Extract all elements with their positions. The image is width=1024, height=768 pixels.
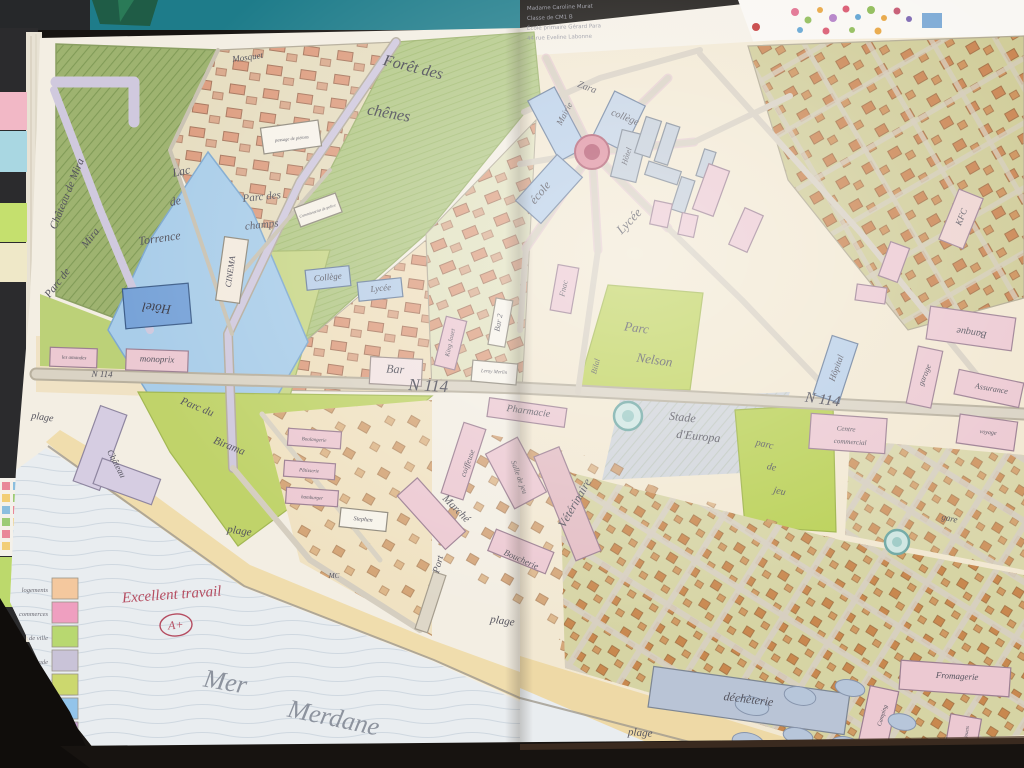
- photo-glare: [0, 0, 1024, 768]
- photo-of-hand-drawn-map: Château de MiraMosquetForêt deschênesLac…: [0, 0, 1024, 768]
- map-drawing: Château de MiraMosquetForêt deschênesLac…: [0, 0, 1024, 768]
